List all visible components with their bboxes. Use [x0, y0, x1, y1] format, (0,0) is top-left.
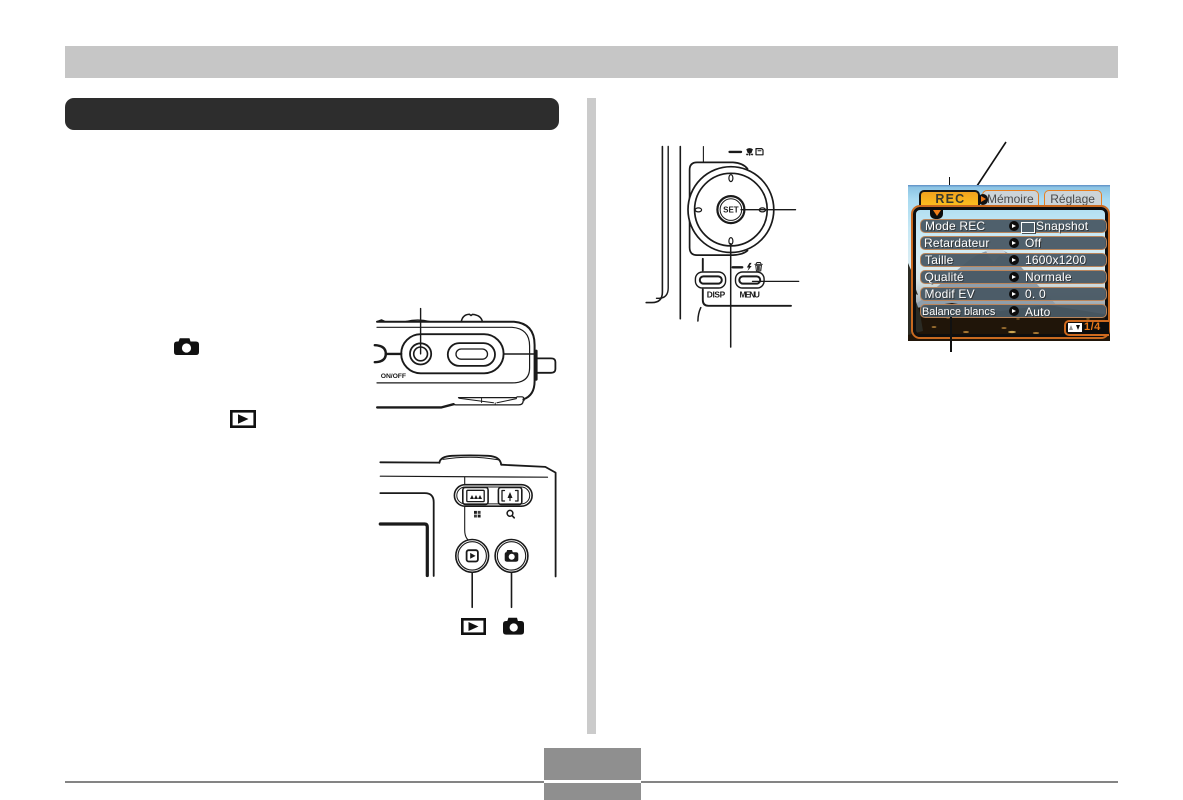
svg-text:DISP: DISP — [707, 290, 726, 300]
svg-text:ON/OFF: ON/OFF — [381, 373, 406, 380]
svg-text:SET: SET — [723, 206, 739, 215]
svg-text:MENU: MENU — [739, 290, 760, 300]
